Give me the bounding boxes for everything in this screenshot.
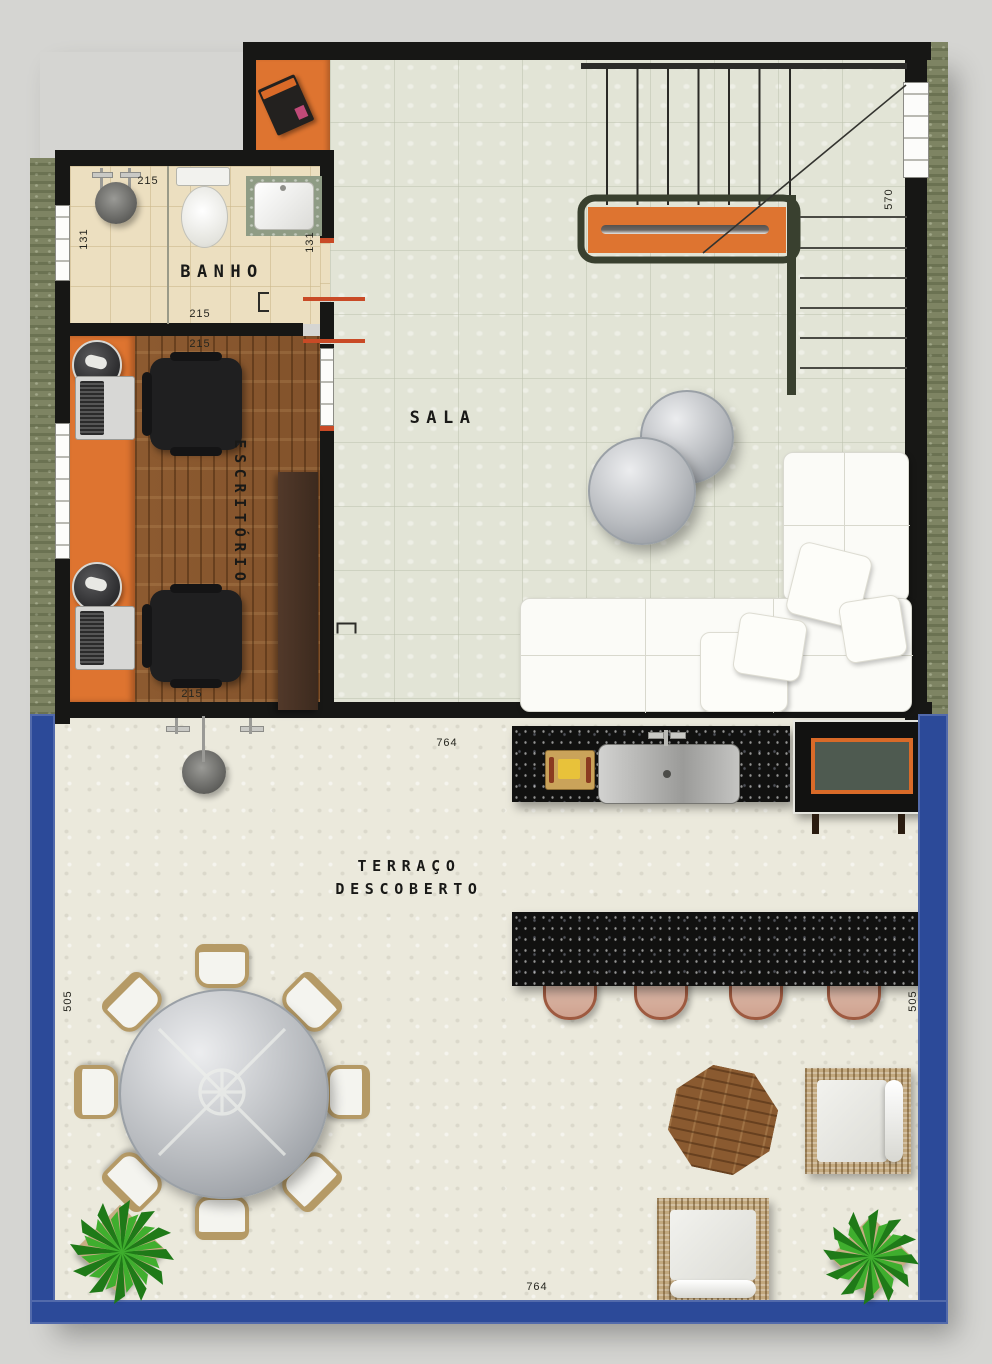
- cutting-board-handle: [549, 757, 554, 783]
- shower-head-icon: [95, 182, 137, 224]
- terrace-border-left: [30, 714, 55, 1324]
- potted-plant-icon: [814, 1200, 928, 1314]
- laptop-keyboard: [80, 611, 104, 665]
- dining-chair: [195, 944, 249, 988]
- magazine-chip: [294, 105, 308, 120]
- dimension-banho-top: 215: [128, 175, 168, 187]
- faucet-handle-icon: [670, 732, 686, 739]
- sofa-seam: [645, 599, 646, 713]
- faucet-handle-icon: [648, 732, 664, 739]
- sofa-seam: [784, 525, 910, 526]
- faucet-icon: [664, 730, 668, 746]
- floor-plan: BANHO ESCRITÓRIO SALA TERRAÇO DESCOBERTO…: [0, 0, 992, 1364]
- room-label-sala: SALA: [383, 408, 503, 428]
- stair-rail-corner: [787, 195, 796, 395]
- stair-rail-top: [581, 63, 907, 69]
- dimension-banho-right: 131: [304, 222, 316, 262]
- door-marker: [303, 297, 365, 301]
- potted-plant-icon: [60, 1190, 184, 1314]
- dimension-escritorio-bottom: 215: [172, 688, 212, 700]
- stair-direction-line: [703, 85, 906, 253]
- wall-entrance-left: [243, 42, 256, 166]
- outdoor-shower-pipe-icon: [175, 718, 178, 734]
- toilet-icon: [181, 186, 228, 248]
- office-opening: [320, 348, 334, 426]
- wall-right-col-b: [320, 302, 334, 339]
- stair-shelf-board: [601, 225, 769, 234]
- laptop-icon: [75, 606, 135, 670]
- chair-arm: [170, 447, 222, 456]
- dimension-banho-left: 131: [78, 219, 90, 259]
- outdoor-shower-valve-icon: [166, 726, 190, 732]
- cutting-board-food: [558, 759, 580, 779]
- door-swing-symbol: [337, 623, 357, 634]
- basin-faucet-icon: [280, 185, 286, 191]
- desk-caddy: [72, 562, 122, 612]
- stair-treads-right: [800, 217, 907, 368]
- outdoor-shower-pipe-icon: [249, 718, 252, 734]
- chair-arm: [170, 352, 222, 361]
- dimension-terraco-right: 505: [907, 981, 919, 1021]
- wall-right-col-a: [320, 150, 334, 238]
- dimension-terraco-left: 505: [62, 981, 74, 1021]
- wicker-armchair: [657, 1198, 769, 1306]
- door-marker: [303, 339, 365, 343]
- room-label-terraco-line1: TERRAÇO: [299, 857, 519, 875]
- grill-leg: [812, 814, 819, 834]
- dining-chair: [195, 1196, 249, 1240]
- dining-chair: [326, 1065, 370, 1119]
- dimension-terraco-bottom: 764: [517, 1281, 557, 1293]
- laptop-icon: [75, 376, 135, 440]
- grill-surface: [811, 738, 913, 794]
- kitchen-sink-icon: [598, 744, 740, 804]
- dimension-banho-bottom: 215: [180, 308, 220, 320]
- office-chair: [150, 358, 242, 450]
- sink-drain: [663, 770, 671, 778]
- desk-item: [84, 354, 108, 371]
- dimension-terraco-top: 764: [427, 737, 467, 749]
- bathroom-window: [55, 205, 70, 281]
- armchair-cushion: [817, 1080, 887, 1162]
- bar-counter: [512, 912, 932, 986]
- wicker-armchair: [805, 1068, 911, 1174]
- shower-valve-icon: [92, 172, 113, 178]
- barbecue-grill: [793, 720, 931, 814]
- chair-back: [142, 604, 152, 668]
- grill-leg: [898, 814, 905, 834]
- dimension-escritorio-top: 215: [180, 338, 220, 350]
- desk-item: [84, 576, 108, 593]
- staircase: [575, 55, 915, 395]
- sofa-ottoman-pillow: [732, 611, 809, 683]
- laptop-keyboard: [80, 381, 104, 435]
- door-swing-symbol: [258, 292, 269, 312]
- cutting-board-handle: [586, 757, 591, 783]
- outdoor-shower-valve-icon: [240, 726, 264, 732]
- bathroom-partition: [167, 166, 169, 324]
- dimension-stairs: 570: [883, 179, 895, 219]
- office-chair: [150, 590, 242, 682]
- cutting-board-icon: [545, 750, 595, 790]
- stair-treads-upper: [607, 69, 790, 205]
- armchair-backrest: [670, 1280, 756, 1298]
- armchair-cushion: [670, 1210, 756, 1280]
- armchair-backrest: [885, 1080, 903, 1162]
- door-marker: [320, 238, 334, 243]
- room-label-terraco-line2: DESCOBERTO: [299, 880, 519, 898]
- chair-arm: [170, 679, 222, 688]
- room-label-banho: BANHO: [152, 262, 292, 282]
- sideboard: [278, 472, 318, 710]
- door-marker: [320, 426, 334, 431]
- dining-table-umbrella-icon: [119, 989, 325, 1195]
- toilet-tank-icon: [176, 167, 230, 186]
- sofa-pillow: [838, 594, 909, 665]
- exterior-landscape-left: [30, 158, 57, 724]
- chair-back: [142, 372, 152, 436]
- wall-bathroom-office-divider: [70, 323, 303, 336]
- wall-bathroom-top: [55, 150, 333, 166]
- chair-arm: [170, 584, 222, 593]
- outdoor-shower-pipe-icon: [202, 716, 205, 762]
- coffee-table-large: [588, 437, 696, 545]
- dining-chair: [74, 1065, 118, 1119]
- office-window: [55, 423, 70, 559]
- room-label-escritorio: ESCRITÓRIO: [231, 428, 249, 598]
